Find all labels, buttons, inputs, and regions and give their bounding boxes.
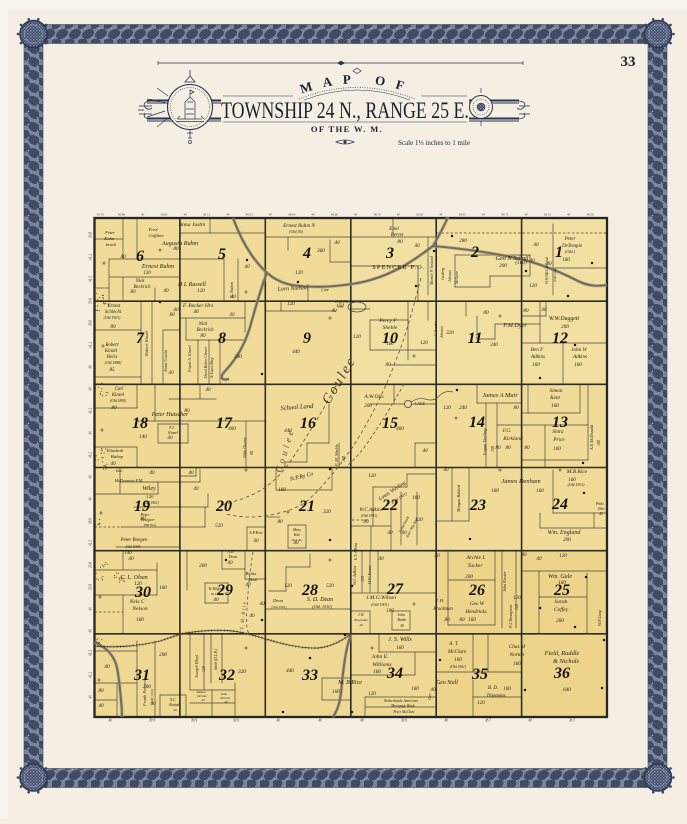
svg-text:(Old 1911): (Old 1911): [361, 514, 378, 518]
svg-text:bruck: bruck: [106, 242, 117, 247]
svg-text:160: 160: [513, 661, 521, 667]
svg-text:41.2: 41.2: [89, 540, 93, 546]
svg-text:40: 40: [444, 719, 448, 723]
svg-text:John Koster: John Koster: [502, 571, 507, 592]
svg-text:160: 160: [386, 341, 394, 347]
svg-text:Mary: Mary: [292, 528, 302, 532]
svg-text:18: 18: [132, 415, 148, 432]
svg-text:320: 320: [238, 669, 246, 675]
svg-text:Anna Justin: Anna Justin: [178, 222, 206, 228]
svg-text:33: 33: [301, 667, 318, 684]
svg-text:160: 160: [136, 617, 144, 623]
svg-text:40: 40: [541, 306, 547, 313]
svg-text:40: 40: [229, 311, 235, 318]
svg-text:Adkins: Adkins: [572, 354, 587, 360]
svg-text:Wiley: Wiley: [142, 486, 156, 492]
svg-text:W.R.Limp: W.R.Limp: [597, 610, 602, 626]
svg-text:Goffinet: Goffinet: [148, 233, 164, 238]
svg-text:39.8: 39.8: [89, 562, 93, 568]
svg-text:80: 80: [444, 617, 450, 623]
svg-text:Brockman: Brockman: [354, 618, 368, 622]
svg-text:40: 40: [253, 537, 259, 544]
svg-text:80: 80: [513, 405, 519, 411]
svg-text:120: 120: [284, 583, 292, 589]
svg-text:80: 80: [173, 246, 179, 252]
svg-text:Nelson: Nelson: [131, 606, 148, 612]
svg-text:41.2: 41.2: [89, 672, 93, 678]
svg-text:40: 40: [414, 242, 420, 249]
svg-text:520: 520: [326, 583, 334, 589]
svg-text:Birtha: Birtha: [246, 571, 257, 576]
svg-text:40: 40: [397, 212, 401, 216]
svg-text:38.45: 38.45: [459, 212, 467, 216]
svg-text:Dean: Dean: [228, 554, 238, 559]
svg-text:40: 40: [201, 698, 205, 702]
svg-text:Martin N Ireland: Martin N Ireland: [429, 255, 434, 286]
svg-text:Beckrich: Beckrich: [133, 285, 151, 290]
svg-text:40: 40: [521, 551, 527, 558]
svg-text:80: 80: [184, 408, 190, 414]
svg-text:200: 200: [556, 618, 564, 624]
svg-text:Nels C: Nels C: [129, 599, 145, 605]
svg-text:120: 120: [295, 270, 303, 276]
svg-text:J.M.G.Wilson: J.M.G.Wilson: [366, 595, 396, 601]
svg-text:40: 40: [546, 260, 552, 267]
svg-text:Carl: Carl: [115, 387, 124, 392]
svg-text:39.82: 39.82: [160, 212, 168, 216]
svg-text:360: 360: [317, 248, 325, 254]
svg-text:120: 120: [143, 270, 151, 276]
svg-text:160: 160: [341, 456, 346, 462]
svg-text:40: 40: [434, 552, 440, 559]
svg-text:Sarah: Sarah: [554, 599, 567, 605]
svg-text:120: 120: [134, 581, 142, 587]
svg-text:39.9: 39.9: [233, 719, 239, 723]
svg-text:John W: John W: [571, 347, 587, 353]
svg-text:320: 320: [446, 330, 454, 336]
svg-text:40: 40: [536, 555, 542, 562]
svg-text:40: 40: [167, 434, 173, 441]
svg-text:Kirkland: Kirkland: [502, 436, 523, 442]
svg-text:40: 40: [163, 287, 169, 294]
svg-text:32: 32: [218, 667, 235, 684]
svg-text:80: 80: [524, 445, 530, 451]
svg-text:(Old.1899): (Old.1899): [110, 399, 127, 403]
svg-text:38.70: 38.70: [373, 212, 381, 216]
svg-text:40: 40: [104, 663, 110, 670]
svg-text:Mortgage Bank: Mortgage Bank: [390, 704, 415, 708]
svg-text:40: 40: [249, 612, 255, 619]
svg-text:120: 120: [514, 604, 519, 610]
svg-text:40: 40: [224, 700, 228, 704]
svg-text:160: 160: [558, 580, 566, 586]
svg-text:(Old.): (Old.): [565, 249, 576, 254]
svg-text:Netherlands American: Netherlands American: [383, 699, 418, 703]
svg-text:39.8: 39.8: [89, 298, 93, 304]
svg-text:40: 40: [110, 460, 116, 467]
svg-text:Robert: Robert: [104, 343, 119, 348]
svg-text:120: 120: [529, 283, 537, 289]
svg-text:Augusta Ruhm: Augusta Ruhm: [161, 240, 199, 247]
svg-text:P.J.Thompson: P.J.Thompson: [508, 605, 513, 629]
svg-text:J. H.: J. H.: [436, 598, 445, 603]
svg-text:38.7: 38.7: [485, 719, 491, 723]
svg-text:Kinzel: Kinzel: [111, 393, 125, 398]
svg-text:24: 24: [551, 496, 568, 513]
svg-text:120: 120: [147, 494, 155, 499]
svg-text:41.2: 41.2: [89, 452, 93, 458]
svg-text:40: 40: [430, 686, 436, 693]
svg-text:40: 40: [89, 607, 93, 611]
svg-text:Ernest: Ernest: [107, 304, 121, 309]
svg-text:120: 120: [360, 576, 365, 582]
svg-text:40: 40: [193, 308, 199, 315]
svg-text:38.6: 38.6: [89, 518, 93, 524]
svg-text:Bader: Bader: [397, 618, 407, 622]
svg-text:Elizabeth: Elizabeth: [106, 448, 124, 453]
svg-text:38.90: 38.90: [288, 212, 296, 216]
svg-text:A.W.Otis: A.W.Otis: [363, 394, 383, 400]
svg-text:John: John: [397, 613, 404, 617]
svg-text:40: 40: [89, 387, 93, 391]
svg-text:F.J.: F.J.: [168, 426, 174, 430]
svg-text:40: 40: [259, 600, 265, 607]
svg-text:280: 280: [459, 238, 467, 244]
svg-text:Norton: Norton: [509, 652, 525, 658]
svg-text:Geo: Geo: [427, 693, 432, 700]
svg-text:200: 200: [159, 652, 167, 658]
svg-text:F. M. Sheble: F. M. Sheble: [334, 444, 339, 467]
svg-text:Smith (D.L.R.): Smith (D.L.R.): [214, 648, 218, 670]
svg-text:400: 400: [396, 425, 404, 432]
svg-text:160: 160: [503, 686, 511, 692]
svg-text:40: 40: [227, 559, 233, 566]
svg-text:39.8: 39.8: [89, 584, 93, 590]
svg-text:Wm. England: Wm. England: [548, 530, 582, 536]
svg-text:A.E.McDonald: A.E.McDonald: [589, 424, 594, 451]
svg-text:F.G.: F.G.: [502, 429, 512, 434]
svg-text:200: 200: [364, 403, 372, 409]
svg-text:W. Kilgore: W. Kilgore: [208, 587, 224, 591]
svg-text:140: 140: [124, 549, 132, 556]
svg-text:(Old. 1910): (Old. 1910): [312, 604, 332, 609]
svg-text:80: 80: [495, 445, 501, 451]
svg-text:40: 40: [250, 451, 254, 455]
svg-text:16: 16: [300, 415, 316, 432]
svg-text:(Old 1901): (Old 1901): [450, 665, 467, 669]
svg-text:S.P.Kite: S.P.Kite: [249, 530, 262, 535]
svg-text:40: 40: [311, 212, 315, 216]
svg-text:5: 5: [218, 246, 226, 263]
svg-text:Kinzel: Kinzel: [104, 349, 118, 354]
svg-text:14: 14: [469, 414, 485, 431]
svg-text:40: 40: [567, 212, 571, 216]
svg-text:Dean: Dean: [272, 598, 284, 603]
svg-text:160: 160: [574, 362, 582, 368]
svg-text:& Laura Burg: & Laura Burg: [210, 357, 214, 378]
svg-text:40: 40: [213, 596, 219, 603]
svg-text:40: 40: [599, 512, 603, 516]
svg-text:160: 160: [468, 617, 476, 623]
svg-text:Philo: Philo: [595, 502, 604, 506]
svg-text:40: 40: [524, 212, 528, 216]
svg-text:SPENCER P.O.: SPENCER P.O.: [372, 264, 425, 271]
svg-text:40: 40: [89, 475, 93, 479]
svg-text:240: 240: [490, 341, 498, 348]
svg-text:Heirs: Heirs: [106, 355, 118, 360]
svg-text:80: 80: [111, 405, 117, 411]
svg-text:McGuire: McGuire: [455, 271, 459, 285]
svg-text:40: 40: [334, 239, 340, 246]
svg-text:Peter Boegen: Peter Boegen: [119, 538, 148, 543]
svg-text:E.T. Adkins: E.T. Adkins: [354, 542, 358, 561]
svg-text:120: 120: [197, 288, 205, 294]
svg-text:LAKE: LAKE: [415, 402, 426, 406]
svg-text:39.60: 39.60: [331, 212, 339, 216]
svg-text:M. B Rice: M. B Rice: [337, 680, 362, 686]
svg-text:(Old 1901): (Old 1901): [143, 501, 160, 505]
svg-text:40: 40: [245, 581, 251, 588]
svg-text:80: 80: [140, 516, 146, 522]
svg-text:Frank A. Kinzel: Frank A. Kinzel: [187, 345, 192, 373]
svg-text:38.55: 38.55: [544, 212, 552, 216]
svg-text:120: 120: [353, 334, 361, 340]
svg-text:440: 440: [284, 427, 292, 434]
svg-text:200: 200: [499, 263, 507, 269]
svg-text:McClure: McClure: [447, 649, 467, 655]
svg-text:(D.L.R.): (D.L.R.): [211, 592, 222, 596]
svg-text:200: 200: [561, 324, 569, 330]
svg-text:40: 40: [318, 719, 322, 723]
svg-text:320: 320: [323, 509, 331, 515]
svg-text:Thiemens: Thiemens: [486, 694, 505, 699]
svg-text:85: 85: [109, 367, 115, 373]
svg-text:41.2: 41.2: [89, 342, 93, 348]
svg-text:S. D. Dean: S. D. Dean: [307, 597, 333, 603]
svg-text:39.75: 39.75: [501, 212, 509, 216]
svg-text:39.9: 39.9: [149, 719, 155, 723]
svg-text:Morgan Ballard: Morgan Ballard: [456, 484, 461, 513]
svg-text:40: 40: [89, 629, 93, 633]
svg-text:23: 23: [469, 497, 486, 514]
svg-text:80: 80: [397, 239, 403, 245]
svg-text:4: 4: [302, 245, 311, 262]
svg-text:36: 36: [553, 665, 570, 682]
svg-text:39.8: 39.8: [89, 232, 93, 238]
svg-text:40: 40: [226, 212, 230, 216]
svg-text:40: 40: [173, 708, 177, 712]
svg-text:120: 120: [513, 595, 521, 601]
svg-text:200: 200: [465, 574, 473, 580]
svg-text:H.W. Evans: H.W. Evans: [367, 565, 372, 585]
svg-text:8: 8: [218, 330, 226, 347]
svg-text:40: 40: [293, 539, 299, 546]
svg-text:160: 160: [278, 487, 286, 493]
svg-text:120: 120: [559, 553, 567, 559]
svg-text:Perret: Perret: [390, 233, 404, 238]
svg-text:40: 40: [359, 623, 363, 627]
svg-text:(Old 1901): (Old 1901): [272, 605, 288, 609]
svg-text:200: 200: [199, 563, 207, 569]
svg-text:120: 120: [201, 666, 206, 672]
svg-text:80: 80: [483, 310, 489, 316]
svg-text:40: 40: [276, 719, 280, 723]
svg-text:Kohn-: Kohn-: [103, 236, 116, 241]
svg-text:160: 160: [568, 477, 576, 483]
svg-text:(Old 1901): (Old 1901): [371, 602, 389, 607]
svg-text:40: 40: [528, 719, 532, 723]
svg-text:80: 80: [110, 324, 116, 330]
svg-text:Casberg: Casberg: [441, 268, 445, 280]
svg-text:(Old you): (Old you): [553, 268, 557, 282]
svg-text:Percy F: Percy F: [378, 318, 397, 324]
svg-text:Field, Ruddle: Field, Ruddle: [544, 650, 580, 657]
svg-text:41.2: 41.2: [89, 408, 93, 414]
svg-text:80: 80: [277, 519, 283, 525]
svg-text:80: 80: [523, 308, 529, 314]
svg-text:Schlecht: Schlecht: [105, 310, 122, 315]
svg-text:40: 40: [205, 386, 211, 393]
svg-text:B. D.: B. D.: [488, 686, 498, 691]
svg-text:M.B.Rice: M.B.Rice: [566, 469, 588, 475]
svg-text:40: 40: [89, 695, 93, 699]
svg-text:Peter Hutscher: Peter Hutscher: [151, 412, 189, 418]
svg-text:520: 520: [215, 523, 223, 529]
svg-text:120: 120: [368, 691, 376, 697]
svg-text:Brockman: Brockman: [433, 607, 453, 612]
svg-text:Peter McClure: Peter McClure: [392, 710, 415, 714]
svg-text:2: 2: [470, 244, 479, 261]
svg-text:40: 40: [244, 263, 250, 270]
svg-text:Sheble: Sheble: [383, 325, 398, 331]
svg-text:3: 3: [385, 245, 394, 262]
svg-text:120: 120: [287, 301, 295, 307]
svg-text:38.15: 38.15: [203, 212, 211, 216]
svg-text:200: 200: [143, 684, 151, 690]
svg-text:(Old.36): (Old.36): [289, 229, 303, 234]
svg-text:140: 140: [139, 433, 147, 440]
svg-text:40: 40: [360, 719, 364, 723]
svg-text:(Old 1901): (Old 1901): [568, 483, 586, 487]
svg-text:160: 160: [411, 686, 419, 692]
svg-text:& Nichols: & Nichols: [553, 658, 580, 665]
svg-text:150: 150: [336, 303, 344, 309]
svg-text:280: 280: [234, 354, 242, 360]
svg-text:640: 640: [563, 686, 571, 693]
svg-text:C. Sanden: C. Sanden: [434, 321, 438, 336]
svg-text:40: 40: [89, 431, 93, 435]
svg-text:34.70: 34.70: [96, 212, 104, 216]
svg-text:Hendricks: Hendricks: [464, 609, 486, 615]
svg-text:120: 120: [443, 405, 451, 411]
svg-text:40: 40: [354, 212, 358, 216]
svg-text:240: 240: [459, 404, 467, 411]
svg-text:TOWNSHIP 24 N., RANGE 25 E.: TOWNSHIP 24 N., RANGE 25 E.: [221, 99, 469, 124]
svg-text:39.9: 39.9: [401, 719, 407, 723]
svg-text:40: 40: [439, 212, 443, 216]
svg-text:38.7: 38.7: [569, 719, 575, 723]
svg-text:(Old 1901): (Old 1901): [104, 316, 122, 320]
svg-text:40: 40: [230, 293, 236, 300]
svg-text:400: 400: [228, 425, 236, 432]
svg-text:80: 80: [98, 688, 104, 694]
svg-text:160: 160: [551, 403, 559, 409]
svg-text:(Old 1888): (Old 1888): [105, 361, 123, 365]
svg-text:160: 160: [159, 585, 167, 591]
svg-text:Coffey: Coffey: [554, 606, 569, 613]
svg-text:160: 160: [532, 362, 540, 368]
svg-text:Almind: Almind: [168, 703, 180, 707]
svg-text:Archie L: Archie L: [466, 555, 486, 561]
svg-text:Peter: Peter: [564, 237, 576, 242]
svg-text:440: 440: [292, 348, 300, 355]
svg-text:120: 120: [415, 517, 423, 523]
svg-text:80: 80: [385, 362, 391, 368]
svg-text:Peter: Peter: [104, 230, 115, 235]
svg-text:Nida Owens: Nida Owens: [242, 437, 247, 459]
svg-text:Joseph Bleyl: Joseph Bleyl: [194, 654, 199, 678]
svg-text:160: 160: [396, 645, 404, 651]
svg-text:160: 160: [553, 446, 561, 452]
svg-text:OF THE W. M.: OF THE W. M.: [311, 124, 383, 134]
svg-text:Adkins: Adkins: [530, 354, 545, 360]
svg-text:Price: Price: [552, 437, 565, 443]
svg-text:F.M.Dyer: F.M.Dyer: [502, 322, 527, 329]
svg-text:40: 40: [188, 469, 194, 476]
svg-text:Shira: Shira: [552, 429, 564, 435]
svg-text:40: 40: [141, 212, 145, 216]
svg-text:21: 21: [298, 498, 315, 515]
svg-text:38.6: 38.6: [89, 320, 93, 326]
svg-text:120: 120: [477, 700, 485, 706]
svg-text:Line: Line: [320, 287, 329, 292]
svg-text:20: 20: [215, 498, 232, 515]
svg-text:120: 120: [368, 473, 376, 479]
svg-text:40: 40: [168, 369, 174, 376]
svg-text:40: 40: [269, 212, 273, 216]
svg-text:David Bellew Chester: David Bellew Chester: [204, 346, 208, 379]
svg-text:Johnson: Johnson: [448, 270, 452, 282]
svg-text:39.9: 39.9: [191, 719, 197, 723]
svg-text:Williams: Williams: [372, 662, 391, 668]
svg-text:80: 80: [169, 312, 175, 318]
svg-text:160: 160: [596, 440, 601, 446]
svg-text:80: 80: [130, 289, 136, 295]
svg-text:40: 40: [184, 212, 188, 216]
svg-text:39.98: 39.98: [118, 212, 126, 216]
svg-text:Kite: Kite: [293, 533, 301, 537]
svg-text:35: 35: [471, 666, 488, 683]
svg-text:41.2: 41.2: [89, 254, 93, 260]
svg-text:26: 26: [468, 582, 485, 599]
svg-text:11: 11: [467, 330, 482, 347]
svg-text:Johnson: Johnson: [440, 326, 444, 338]
svg-text:Nick: Nick: [135, 279, 146, 284]
svg-text:160: 160: [491, 488, 499, 494]
svg-text:Frank Petrovic: Frank Petrovic: [142, 678, 147, 707]
svg-text:160: 160: [536, 488, 544, 494]
svg-text:Geo Stall: Geo Stall: [436, 680, 458, 686]
svg-text:160: 160: [373, 669, 381, 675]
svg-text:180: 180: [386, 608, 394, 614]
svg-text:Robert Kinzel: Robert Kinzel: [144, 330, 149, 357]
svg-text:Nick: Nick: [198, 322, 209, 327]
svg-text:McDermote F.M.: McDermote F.M.: [114, 478, 144, 483]
svg-text:(160): (160): [515, 259, 527, 266]
svg-text:40: 40: [108, 719, 112, 723]
svg-text:40: 40: [443, 466, 449, 473]
svg-text:80: 80: [505, 445, 511, 451]
